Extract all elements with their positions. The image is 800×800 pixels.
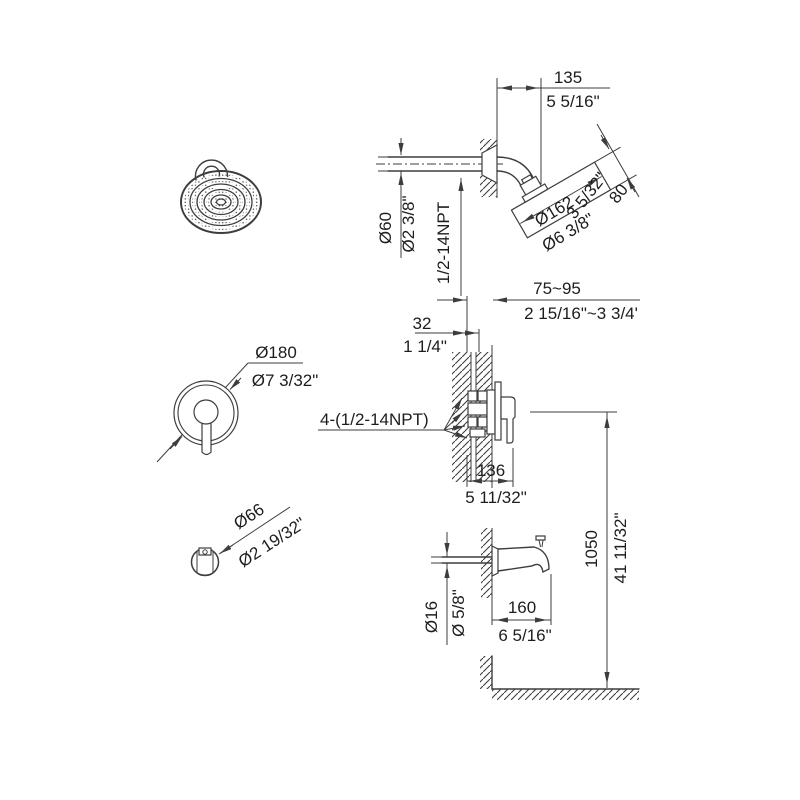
valve-side-view: 75~95 2 15/16"~3 3/4' 32 1 1/4" 4-(1/2-1… [318, 279, 640, 507]
handle-front-view: Ø180 Ø7 3/32" [157, 343, 318, 462]
spout-body [498, 547, 549, 572]
valve-width-mm-label: 136 [477, 461, 505, 480]
valve-escutcheon [487, 390, 495, 434]
shower-head-front-view [181, 160, 261, 233]
head-offset-in-label: 5 5/16" [546, 92, 599, 111]
valve-depth-mm-label: 75~95 [533, 279, 581, 298]
spout-len-in-label: 6 5/16" [498, 626, 551, 645]
valve-thread-label: 4-(1/2-14NPT) [320, 410, 429, 429]
shower-system-dimension-drawing: Ø180 Ø7 3/32" Ø66 Ø2 19/32" 135 5 5/16" [0, 0, 800, 800]
spout-pipe-dia-mm-label: Ø16 [422, 601, 441, 633]
arm-bend-inner [497, 171, 522, 188]
height-mm-label: 1050 [582, 530, 601, 568]
spout-front-dia-mm-label: Ø66 [230, 500, 267, 533]
handle-hub [194, 400, 218, 424]
handle-dia-in-label: Ø7 3/32" [252, 371, 319, 390]
valve-escutcheon-plate [495, 382, 501, 440]
valve-width-in-label: 5 11/32" [465, 488, 527, 507]
floor-and-wall-corner [480, 656, 639, 700]
spout-pipe-dia-in-label: Ø 5/8" [449, 589, 468, 637]
spout-front-view: Ø66 Ø2 19/32" [192, 500, 310, 576]
mounting-height-dimension: 1050 41 11/32" [530, 412, 630, 688]
valve-offset-in-label: 1 1/4" [403, 337, 447, 356]
valve-rough-in-body [468, 391, 487, 437]
arm-dia-mm-label: Ø60 [376, 212, 395, 244]
head-offset-mm-label: 135 [554, 68, 582, 87]
head-depth-mm-label: 80 [605, 180, 632, 207]
spout-len-mm-label: 160 [508, 598, 536, 617]
arm-thread-label: 1/2-14NPT [434, 202, 453, 284]
spout-flange [492, 546, 498, 576]
valve-offset-mm-label: 32 [413, 314, 432, 333]
shower-head-side-view: 135 5 5/16" Ø162 Ø6 3/8" 3 5/32" [376, 68, 639, 296]
corner-wall-hatch [480, 656, 492, 689]
valve-handle-lever [501, 397, 515, 443]
arm-dia-in-label: Ø2 3/8" [399, 195, 418, 252]
handle-dia-mm-label: Ø180 [255, 343, 297, 362]
technical-drawing-page: Ø180 Ø7 3/32" Ø66 Ø2 19/32" 135 5 5/16" [0, 0, 800, 800]
height-in-label: 41 11/32" [611, 513, 630, 584]
spout-side-view: Ø16 Ø 5/8" 160 6 5/16" [422, 528, 552, 645]
handle-lever [202, 422, 211, 455]
floor-hatch [492, 689, 639, 700]
diverter-knob [536, 536, 545, 540]
valve-depth-in-label: 2 15/16"~3 3/4' [524, 304, 638, 323]
